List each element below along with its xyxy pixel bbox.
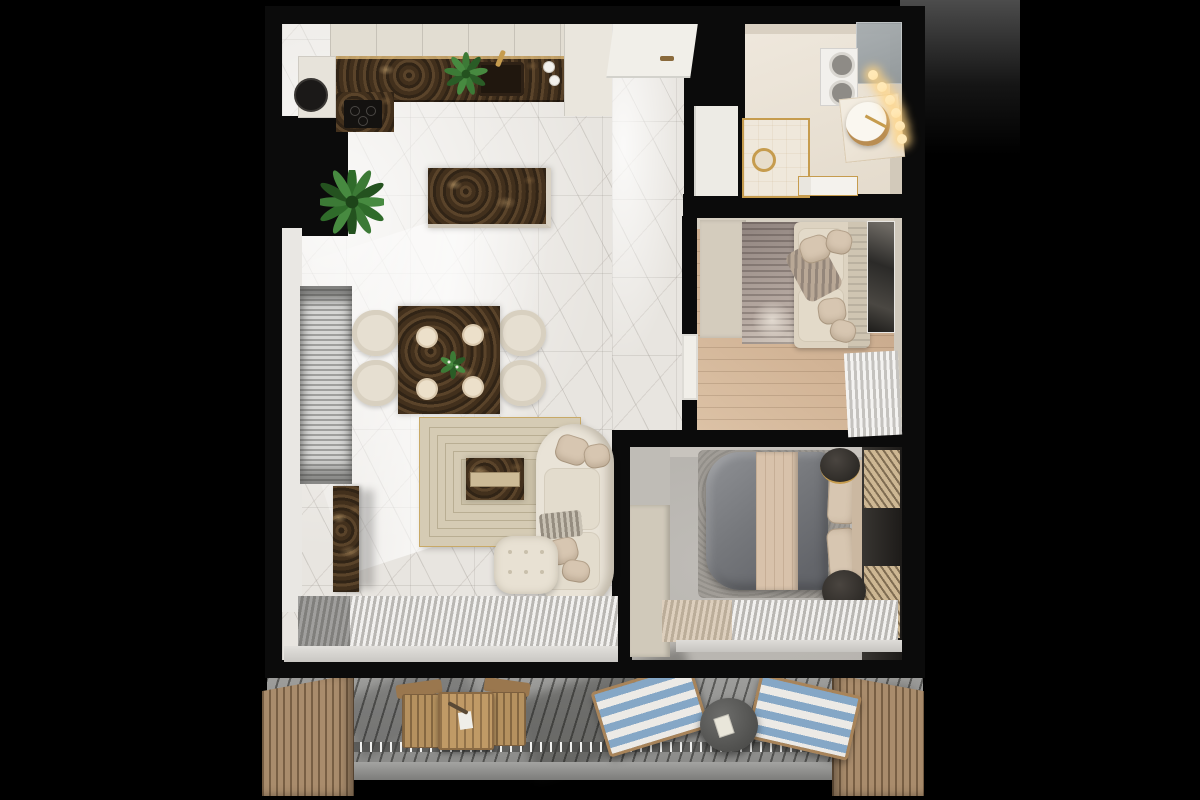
dining-chair xyxy=(498,310,546,356)
wall-top xyxy=(265,6,925,24)
sofa-throw-blanket xyxy=(539,510,583,540)
guest-room-door xyxy=(682,334,698,400)
kitchen-tall-cabinet xyxy=(564,24,612,116)
living-window-sill xyxy=(284,646,618,662)
window-blinds xyxy=(300,286,352,484)
window-frame-left xyxy=(282,228,302,612)
coffee-table-tray xyxy=(470,472,520,487)
tv-shadow xyxy=(360,490,374,588)
bistro-chair-left xyxy=(402,694,440,748)
guest-wardrobe xyxy=(700,220,746,338)
vanity-light xyxy=(885,95,895,105)
nightstand-top xyxy=(820,448,860,484)
guest-sheer-curtain xyxy=(844,351,902,438)
floor-plant xyxy=(320,170,384,234)
bedroom-wall-nook xyxy=(630,447,670,507)
living-curtain-shade xyxy=(298,596,350,650)
kitchen-island xyxy=(428,168,551,228)
wall-guest-left xyxy=(682,216,697,438)
bed-runner-blanket xyxy=(756,452,798,590)
place-setting xyxy=(462,324,484,346)
bedroom-curtain-warm-tint xyxy=(662,600,732,642)
place-setting xyxy=(416,378,438,400)
ottoman-button xyxy=(540,550,544,554)
bathroom-console xyxy=(798,176,858,196)
ottoman-button xyxy=(540,570,544,574)
bedroom-window-sill xyxy=(676,640,902,652)
range-hood xyxy=(294,78,328,112)
ottoman-button xyxy=(524,570,528,574)
cooktop-burner xyxy=(366,106,376,116)
screenshot-stage xyxy=(0,0,1200,800)
glass-shower-panel xyxy=(856,22,902,84)
kitchen-dish xyxy=(544,62,554,72)
front-door-leaf xyxy=(606,24,698,78)
ottoman-button xyxy=(524,550,528,554)
privacy-screen-left xyxy=(262,674,354,796)
balcony-fascia xyxy=(280,762,920,780)
shoe-cabinet xyxy=(694,106,738,196)
entry-corridor-floor xyxy=(612,24,684,434)
place-setting xyxy=(416,326,438,348)
guest-wall-art xyxy=(868,222,894,332)
kitchen-dish xyxy=(550,76,559,85)
wall-right xyxy=(902,6,925,678)
guest-rug-highlight xyxy=(752,300,792,340)
wall-bottom xyxy=(265,660,925,678)
dining-chair xyxy=(498,360,546,406)
cooktop xyxy=(344,100,382,128)
dining-chair xyxy=(352,310,400,356)
vanity-light xyxy=(891,108,901,118)
dining-chair xyxy=(352,360,400,406)
vanity-light xyxy=(895,121,905,131)
front-door-handle xyxy=(660,56,674,61)
vanity-light xyxy=(877,82,887,92)
vanity-light xyxy=(868,70,878,80)
wood-slat-panel xyxy=(864,450,900,508)
shower-head xyxy=(752,148,776,172)
tv-console xyxy=(333,486,359,592)
cooktop-burner xyxy=(350,106,360,116)
ottoman-button xyxy=(508,570,512,574)
washer-door xyxy=(829,52,855,78)
kitchen-herb-plant xyxy=(444,52,488,96)
ottoman-button xyxy=(508,550,512,554)
cooktop-burner xyxy=(358,116,368,126)
centerpiece-plant xyxy=(438,350,468,380)
wall-left xyxy=(265,6,282,678)
ottoman xyxy=(494,536,558,594)
vanity-light xyxy=(897,134,907,144)
